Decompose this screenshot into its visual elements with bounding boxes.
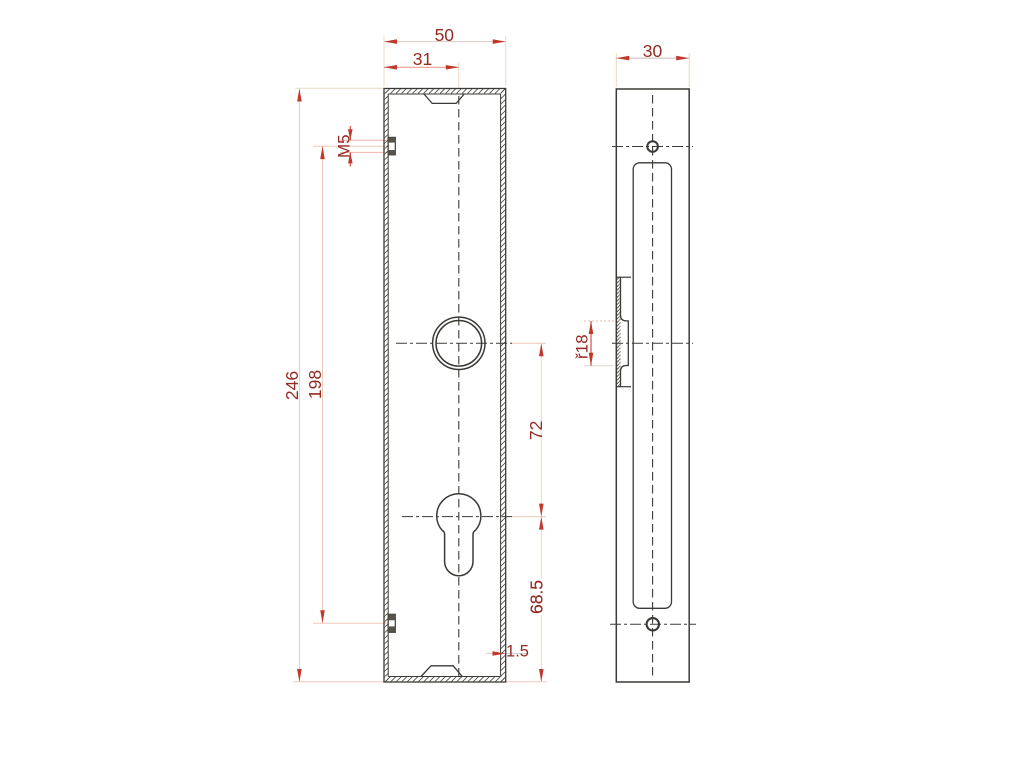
svg-text:68.5: 68.5 bbox=[527, 580, 547, 614]
svg-text:50: 50 bbox=[435, 25, 455, 45]
svg-text:198: 198 bbox=[305, 370, 325, 399]
svg-text:ř18: ř18 bbox=[573, 334, 592, 359]
svg-text:M5: M5 bbox=[335, 134, 354, 158]
svg-text:31: 31 bbox=[413, 49, 432, 69]
svg-text:246: 246 bbox=[282, 371, 302, 400]
svg-text:1.5: 1.5 bbox=[506, 643, 529, 661]
svg-text:30: 30 bbox=[643, 41, 663, 61]
svg-text:72: 72 bbox=[526, 421, 546, 440]
